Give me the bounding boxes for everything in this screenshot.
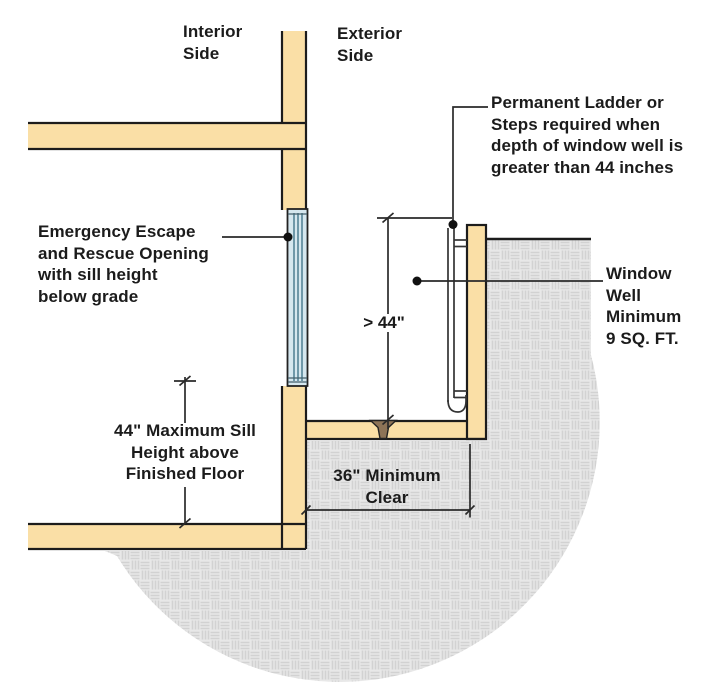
label-line: Side	[337, 45, 402, 67]
label-line: Finished Floor	[85, 463, 285, 485]
label-line: Emergency Escape	[38, 221, 209, 243]
exterior-wall-upper	[282, 31, 306, 210]
label-exterior-side: Exterior Side	[337, 23, 402, 66]
label-line: Permanent Ladder or	[491, 92, 683, 114]
label-line: Side	[183, 43, 242, 65]
label-line: 44" Maximum Sill	[85, 420, 285, 442]
diagram-canvas: Interior Side Exterior Side Permanent La…	[0, 0, 720, 682]
leader-dots	[284, 220, 458, 286]
label-line: greater than 44 inches	[491, 157, 683, 179]
label-window-well-min: Window Well Minimum 9 SQ. FT.	[606, 263, 681, 349]
leader-dot-window	[284, 233, 293, 242]
label-line: with sill height	[38, 264, 209, 286]
label-line: Clear	[307, 487, 467, 509]
label-permanent-ladder: Permanent Ladder or Steps required when …	[491, 92, 683, 178]
window-well-wall	[467, 225, 486, 439]
interior-floor-slab	[28, 524, 306, 549]
leader-dot-well	[413, 277, 422, 286]
label-line: Minimum	[606, 306, 681, 328]
label-line: 36" Minimum	[307, 465, 467, 487]
label-line: 9 SQ. FT.	[606, 328, 681, 350]
label-line: below grade	[38, 286, 209, 308]
label-emergency-opening: Emergency Escape and Rescue Opening with…	[38, 221, 209, 307]
label-sill-height: 44" Maximum Sill Height above Finished F…	[85, 420, 285, 485]
label-line: Steps required when	[491, 114, 683, 136]
leader-dot-ladder	[449, 220, 458, 229]
upper-floor-slab	[28, 123, 306, 149]
label-line: and Rescue Opening	[38, 243, 209, 265]
label-line: Well	[606, 285, 681, 307]
label-interior-side: Interior Side	[183, 21, 242, 64]
label-line: Height above	[85, 442, 285, 464]
label-line: Window	[606, 263, 681, 285]
label-clear-width: 36" Minimum Clear	[307, 465, 467, 508]
label-line: Exterior	[337, 23, 402, 45]
window-well-floor	[306, 421, 487, 439]
ladder	[448, 228, 467, 412]
label-well-depth: > 44"	[360, 314, 408, 332]
label-line: depth of window well is	[491, 135, 683, 157]
label-line: Interior	[183, 21, 242, 43]
